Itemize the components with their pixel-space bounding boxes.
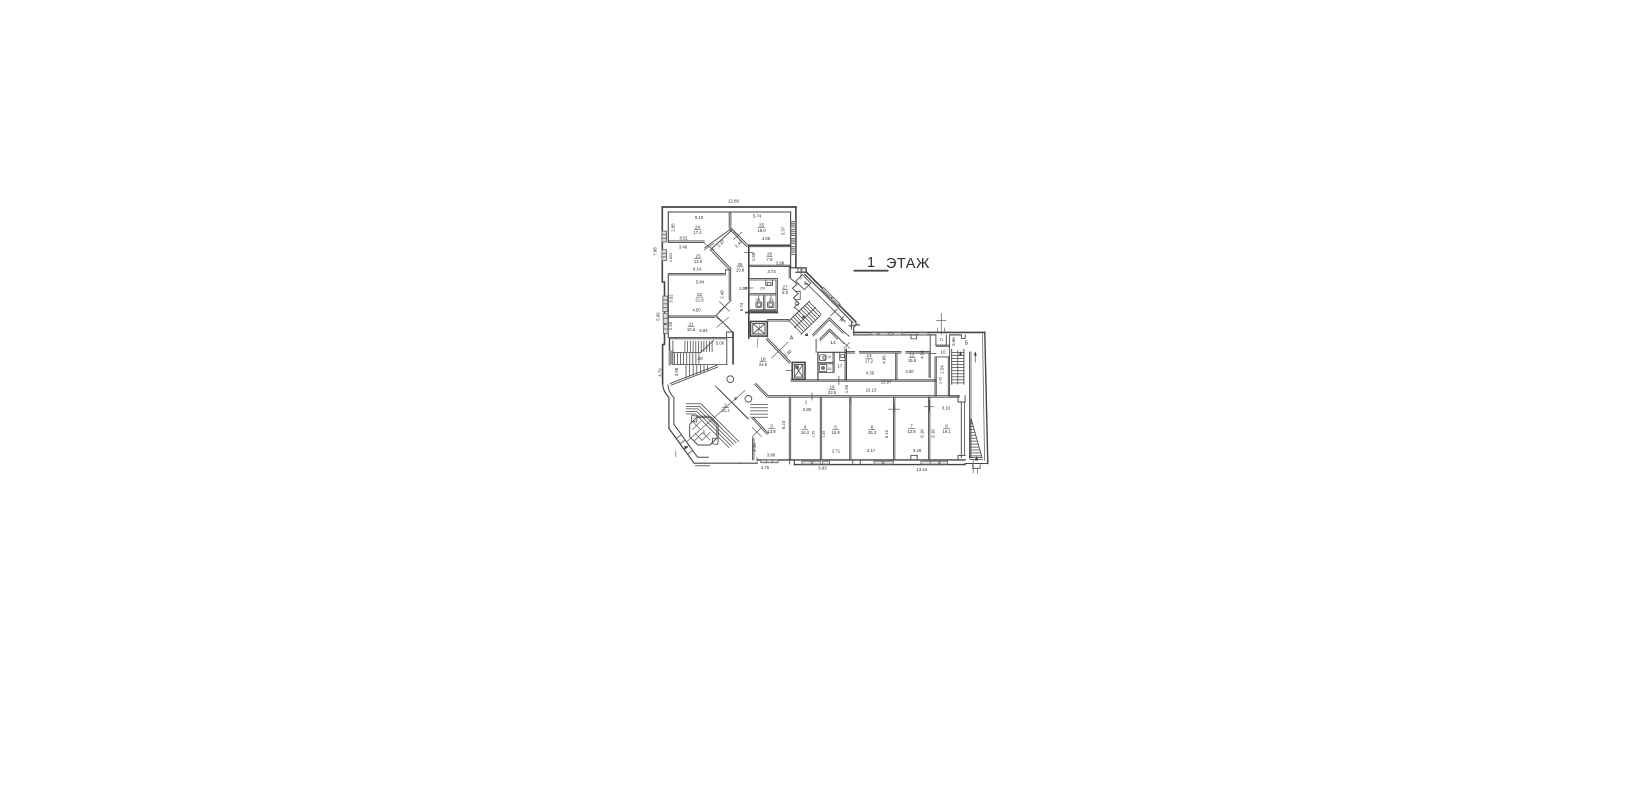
svg-text:5.06: 5.06 bbox=[716, 341, 725, 346]
svg-text:2.80: 2.80 bbox=[803, 407, 812, 412]
svg-text:1.45: 1.45 bbox=[938, 377, 942, 384]
svg-text:2.71: 2.71 bbox=[832, 448, 841, 453]
svg-text:3.92: 3.92 bbox=[669, 294, 674, 303]
svg-text:13: 13 bbox=[866, 353, 872, 358]
svg-text:4.50: 4.50 bbox=[692, 308, 701, 313]
svg-text:5.84: 5.84 bbox=[696, 280, 705, 285]
svg-text:13.97: 13.97 bbox=[881, 379, 892, 384]
svg-text:17: 17 bbox=[837, 363, 843, 368]
svg-text:19: 19 bbox=[829, 385, 835, 390]
svg-text:15.5: 15.5 bbox=[908, 358, 917, 363]
svg-text:21.8: 21.8 bbox=[695, 298, 704, 303]
svg-text:24.9: 24.9 bbox=[759, 362, 768, 367]
svg-text:7.88: 7.88 bbox=[653, 247, 658, 256]
svg-text:4.04: 4.04 bbox=[920, 350, 925, 359]
svg-text:2: 2 bbox=[724, 403, 727, 408]
svg-text:22: 22 bbox=[697, 292, 703, 297]
svg-text:1: 1 bbox=[703, 430, 706, 436]
svg-text:в: в bbox=[841, 317, 843, 322]
svg-text:23: 23 bbox=[695, 254, 701, 259]
svg-text:19.8: 19.8 bbox=[736, 267, 745, 272]
svg-text:23.5: 23.5 bbox=[828, 390, 837, 395]
svg-text:4.00: 4.00 bbox=[905, 369, 914, 374]
svg-text:4.76: 4.76 bbox=[761, 465, 770, 470]
svg-text:26: 26 bbox=[737, 262, 743, 267]
svg-text:2.16: 2.16 bbox=[752, 443, 757, 452]
svg-text:27: 27 bbox=[782, 285, 788, 290]
svg-text:4.05: 4.05 bbox=[882, 355, 887, 364]
svg-text:15.9: 15.9 bbox=[831, 430, 840, 435]
svg-text:18.0: 18.0 bbox=[757, 228, 766, 233]
svg-text:6.74: 6.74 bbox=[739, 302, 744, 311]
svg-text:8: 8 bbox=[945, 424, 948, 429]
svg-text:4.79: 4.79 bbox=[658, 368, 663, 377]
svg-text:3.98: 3.98 bbox=[767, 452, 776, 457]
svg-text:14: 14 bbox=[830, 340, 836, 346]
svg-text:17.2: 17.2 bbox=[865, 359, 874, 364]
svg-text:3.73: 3.73 bbox=[767, 269, 776, 274]
svg-text:10: 10 bbox=[940, 349, 946, 355]
svg-text:30: 30 bbox=[756, 297, 761, 302]
svg-text:2.805: 2.805 bbox=[668, 253, 673, 263]
svg-text:28: 28 bbox=[767, 251, 773, 256]
svg-text:3.98: 3.98 bbox=[776, 260, 785, 265]
svg-text:20: 20 bbox=[697, 356, 703, 362]
svg-text:13.8: 13.8 bbox=[767, 429, 776, 434]
svg-text:1.55: 1.55 bbox=[739, 286, 748, 291]
svg-text:5.93: 5.93 bbox=[818, 466, 827, 471]
svg-text:16: 16 bbox=[828, 367, 832, 371]
svg-text:13.44: 13.44 bbox=[916, 467, 927, 472]
svg-text:15: 15 bbox=[827, 355, 831, 359]
svg-text:12.8: 12.8 bbox=[907, 429, 916, 434]
svg-text:3.10: 3.10 bbox=[942, 406, 951, 411]
svg-text:1.55: 1.55 bbox=[812, 431, 816, 438]
svg-text:8.51: 8.51 bbox=[680, 235, 689, 240]
svg-text:1.96: 1.96 bbox=[751, 252, 756, 261]
svg-text:1: 1 bbox=[867, 255, 875, 271]
svg-text:3.46: 3.46 bbox=[679, 244, 688, 249]
svg-text:29: 29 bbox=[760, 285, 765, 290]
svg-text:5.66: 5.66 bbox=[655, 312, 660, 321]
svg-text:3: 3 bbox=[770, 424, 773, 429]
svg-text:21: 21 bbox=[688, 322, 694, 327]
svg-text:2.48: 2.48 bbox=[720, 290, 725, 299]
svg-text:6.12: 6.12 bbox=[884, 429, 889, 438]
svg-text:2.85: 2.85 bbox=[671, 223, 676, 232]
svg-text:ЭТАЖ: ЭТАЖ bbox=[886, 256, 930, 272]
svg-text:6.14: 6.14 bbox=[693, 266, 702, 271]
svg-text:4.35: 4.35 bbox=[866, 370, 875, 375]
svg-text:3.98: 3.98 bbox=[674, 367, 679, 376]
svg-text:3.37: 3.37 bbox=[781, 226, 786, 235]
svg-text:31: 31 bbox=[769, 297, 774, 302]
svg-text:5.74: 5.74 bbox=[753, 214, 762, 219]
svg-text:7: 7 bbox=[910, 424, 913, 429]
svg-text:6.23: 6.23 bbox=[781, 420, 786, 429]
svg-text:25.3: 25.3 bbox=[868, 430, 877, 435]
svg-text:2.54: 2.54 bbox=[940, 365, 945, 374]
svg-text:9.10: 9.10 bbox=[695, 215, 704, 220]
svg-text:5.66: 5.66 bbox=[951, 337, 956, 346]
svg-text:1.93: 1.93 bbox=[668, 321, 673, 330]
svg-text:5: 5 bbox=[834, 425, 837, 430]
svg-text:19.1: 19.1 bbox=[942, 429, 951, 434]
svg-text:24: 24 bbox=[695, 225, 701, 230]
svg-text:4.17: 4.17 bbox=[867, 448, 876, 453]
svg-text:7.8: 7.8 bbox=[767, 257, 774, 262]
svg-text:1.45: 1.45 bbox=[822, 431, 826, 438]
svg-text:вп: вп bbox=[804, 281, 808, 286]
svg-text:12.89: 12.89 bbox=[728, 198, 739, 203]
svg-text:17.4: 17.4 bbox=[693, 230, 702, 235]
svg-text:4: 4 bbox=[804, 425, 807, 430]
svg-text:25: 25 bbox=[759, 223, 765, 228]
svg-text:3.28: 3.28 bbox=[913, 448, 922, 453]
svg-text:6.10: 6.10 bbox=[920, 429, 925, 438]
svg-text:16.2: 16.2 bbox=[801, 430, 810, 435]
svg-text:6.10: 6.10 bbox=[931, 429, 936, 438]
svg-text:4.05: 4.05 bbox=[762, 236, 771, 241]
svg-text:16.13: 16.13 bbox=[866, 388, 877, 393]
svg-text:12: 12 bbox=[909, 353, 915, 358]
svg-text:6: 6 bbox=[871, 425, 874, 430]
svg-text:1.55: 1.55 bbox=[844, 384, 849, 393]
svg-text:41.4: 41.4 bbox=[721, 408, 730, 413]
svg-text:6.9: 6.9 bbox=[782, 290, 789, 295]
svg-text:5.84: 5.84 bbox=[699, 328, 708, 333]
svg-text:10.6: 10.6 bbox=[687, 327, 696, 332]
svg-text:18: 18 bbox=[760, 357, 766, 362]
svg-text:13.5: 13.5 bbox=[694, 259, 703, 264]
svg-text:А: А bbox=[790, 336, 794, 342]
